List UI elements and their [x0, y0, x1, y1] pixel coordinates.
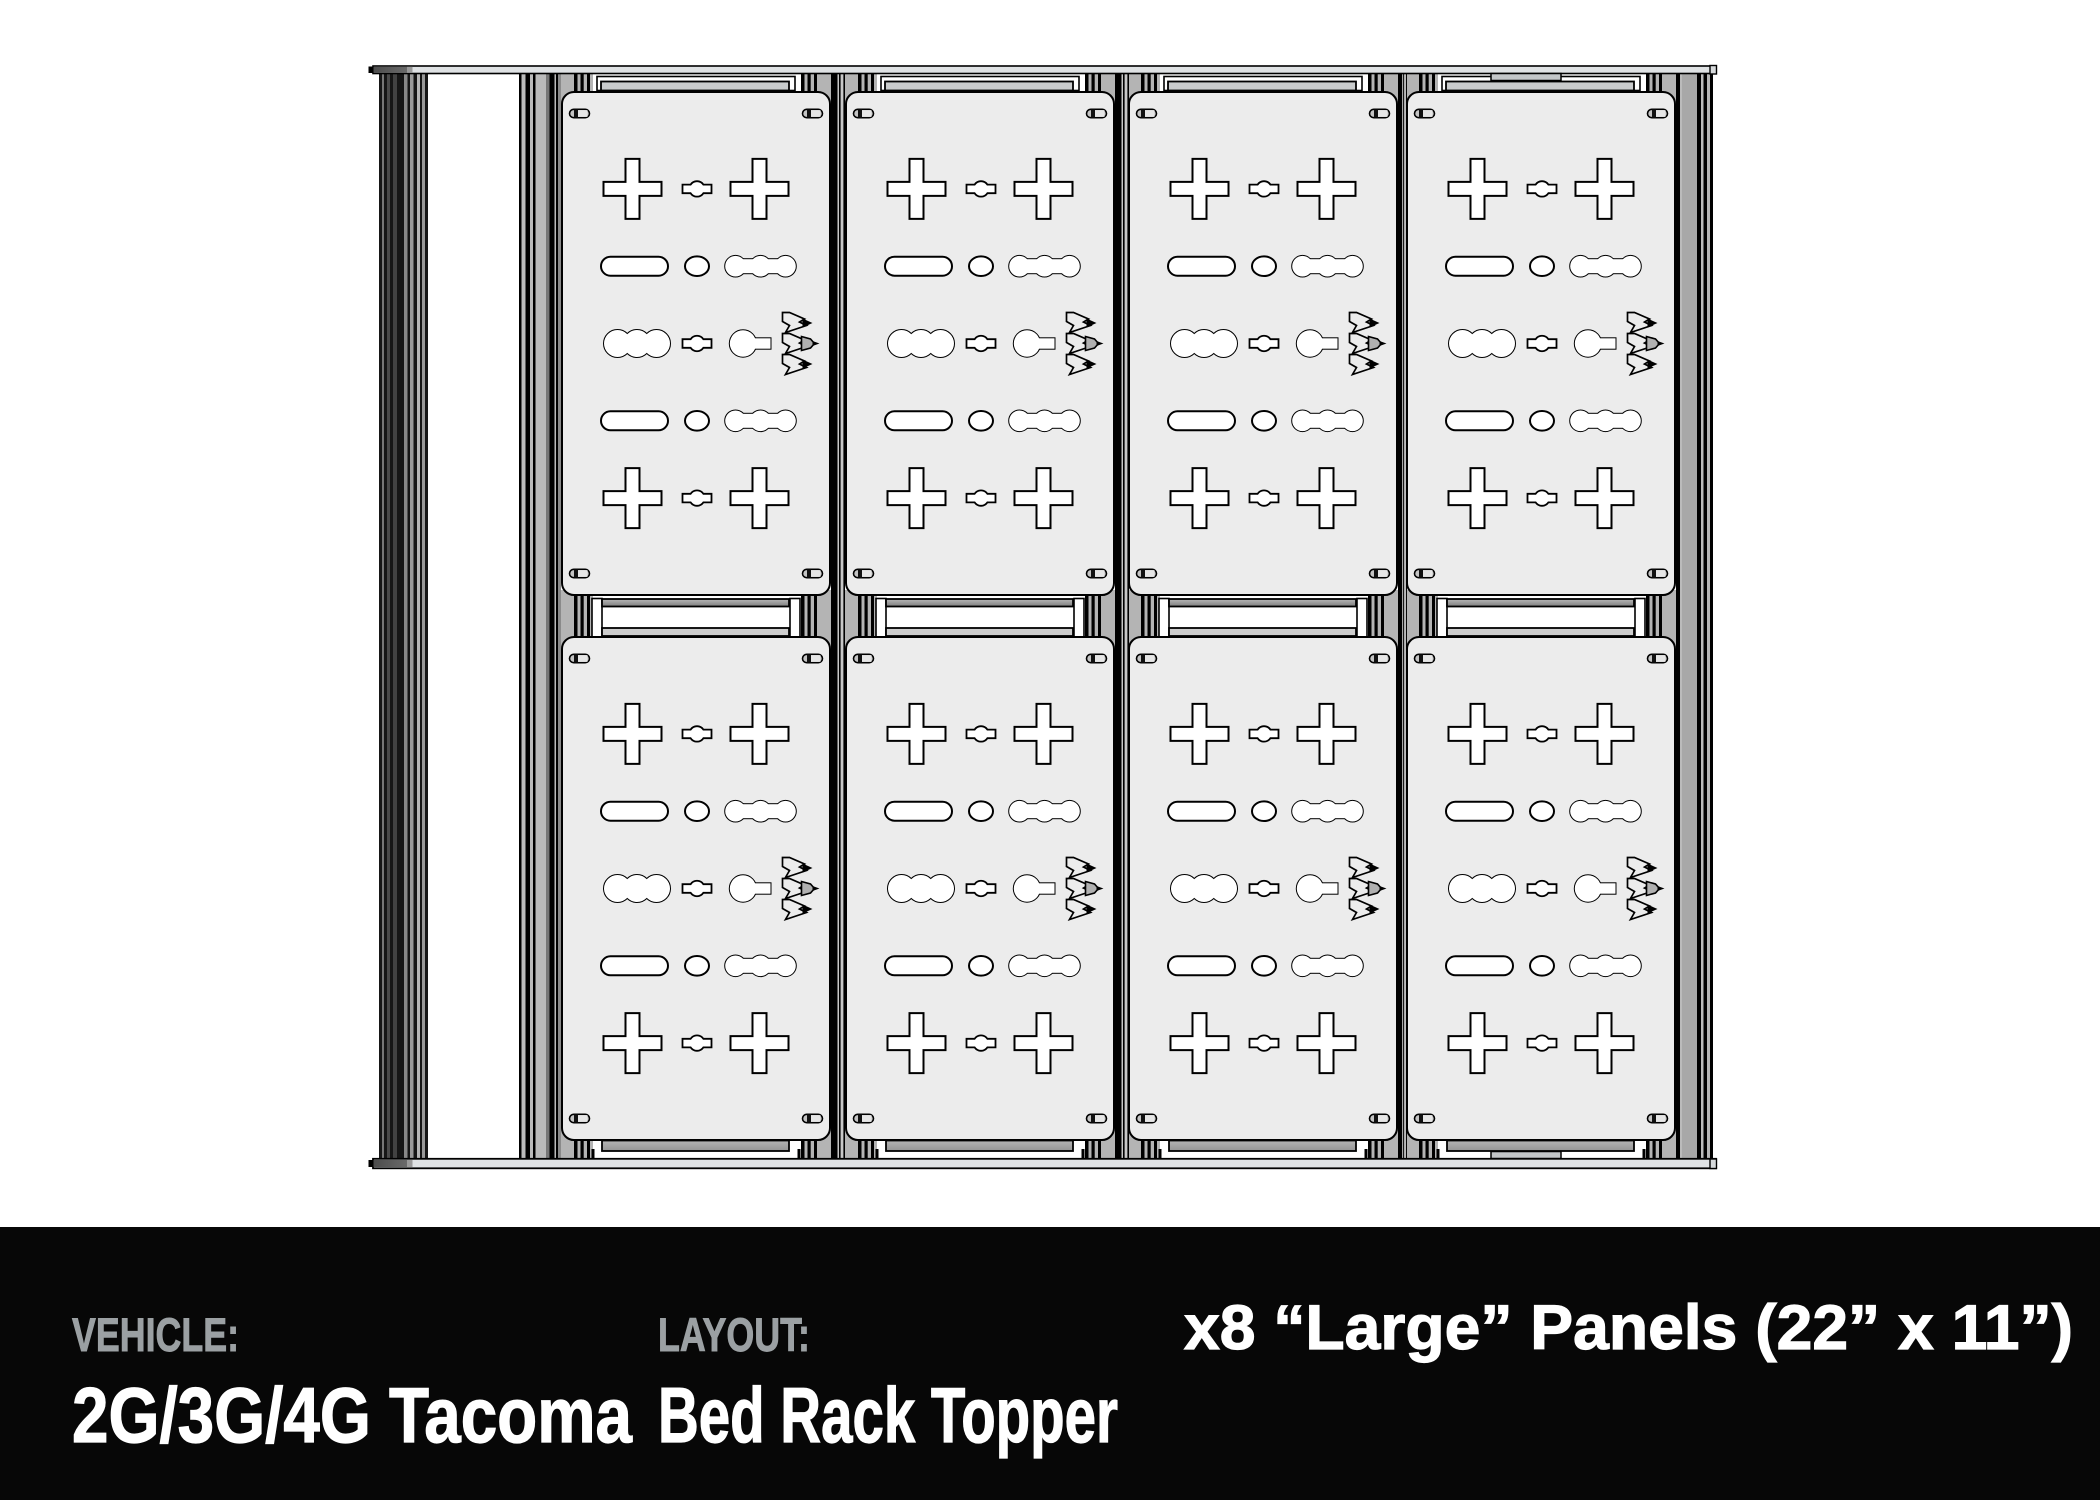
svg-text:Bed Rack Topper: Bed Rack Topper — [658, 1371, 1118, 1459]
svg-text:x8 “Large” Panels (22” x 11”): x8 “Large” Panels (22” x 11”) — [1184, 1293, 2073, 1363]
svg-text:VEHICLE:: VEHICLE: — [72, 1308, 239, 1361]
svg-text:2G/3G/4G Tacoma: 2G/3G/4G Tacoma — [72, 1371, 633, 1459]
svg-text:LAYOUT:: LAYOUT: — [658, 1308, 810, 1361]
